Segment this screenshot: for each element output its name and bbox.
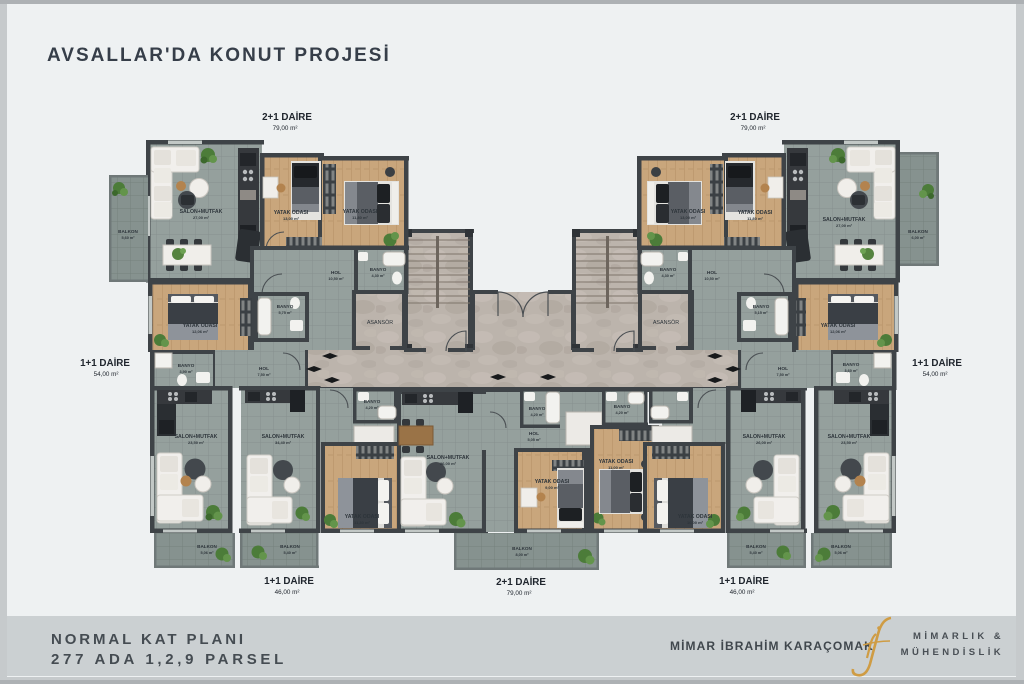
- svg-text:11,80 m²: 11,80 m²: [352, 215, 368, 220]
- svg-text:13,00 m²: 13,00 m²: [680, 215, 697, 220]
- svg-text:NORMAL KAT PLANI: NORMAL KAT PLANI: [51, 631, 246, 648]
- svg-text:4,30 m²: 4,30 m²: [371, 274, 385, 278]
- svg-text:54,00 m²: 54,00 m²: [923, 371, 948, 378]
- svg-text:BALKON: BALKON: [280, 544, 300, 549]
- svg-text:23,50 m²: 23,50 m²: [188, 440, 205, 445]
- svg-text:11,00 m²: 11,00 m²: [608, 465, 624, 470]
- svg-text:HOL: HOL: [331, 270, 341, 276]
- svg-text:79,00 m²: 79,00 m²: [273, 125, 298, 132]
- svg-text:BALKON: BALKON: [197, 544, 217, 549]
- svg-text:BALKON: BALKON: [118, 229, 138, 234]
- svg-text:5,15 m²: 5,15 m²: [754, 311, 768, 315]
- svg-text:34,40 m²: 34,40 m²: [275, 440, 292, 445]
- svg-text:27,00 m²: 27,00 m²: [193, 215, 210, 220]
- svg-text:5,40 m²: 5,40 m²: [283, 551, 297, 555]
- svg-text:10,50 m²: 10,50 m²: [704, 277, 720, 281]
- svg-text:27,00 m²: 27,00 m²: [836, 223, 853, 228]
- svg-text:26,00 m²: 26,00 m²: [440, 461, 457, 466]
- svg-text:HOL: HOL: [259, 366, 269, 372]
- svg-text:5,05 m²: 5,05 m²: [527, 438, 541, 442]
- svg-text:2+1 DAİRE: 2+1 DAİRE: [496, 577, 546, 588]
- svg-text:8,00 m²: 8,00 m²: [515, 553, 529, 557]
- svg-text:46,00 m²: 46,00 m²: [275, 589, 300, 596]
- svg-text:10,00 m²: 10,00 m²: [687, 520, 704, 525]
- svg-text:26,00 m²: 26,00 m²: [756, 440, 773, 445]
- svg-text:277 ADA 1,2,9 PARSEL: 277 ADA 1,2,9 PARSEL: [51, 651, 287, 668]
- svg-text:10,50 m²: 10,50 m²: [328, 277, 344, 281]
- svg-text:5,06 m²: 5,06 m²: [834, 551, 848, 555]
- svg-text:3,90 m²: 3,90 m²: [179, 370, 193, 374]
- svg-text:BANYO: BANYO: [277, 304, 294, 309]
- svg-text:2+1 DAİRE: 2+1 DAİRE: [262, 112, 312, 123]
- svg-text:4,20 m²: 4,20 m²: [365, 406, 379, 410]
- svg-text:BALKON: BALKON: [831, 544, 851, 549]
- svg-text:MİMARLIK &: MİMARLIK &: [913, 631, 1004, 642]
- svg-text:BALKON: BALKON: [908, 229, 928, 234]
- svg-text:BANYO: BANYO: [843, 362, 860, 367]
- svg-text:5,60 m²: 5,60 m²: [121, 236, 135, 240]
- svg-text:AVSALLAR'DA KONUT PROJESİ: AVSALLAR'DA KONUT PROJESİ: [47, 45, 391, 66]
- svg-text:7,50 m²: 7,50 m²: [776, 373, 790, 377]
- svg-text:5,06 m²: 5,06 m²: [200, 551, 214, 555]
- svg-text:79,00 m²: 79,00 m²: [741, 125, 766, 132]
- svg-text:MİMAR İBRAHİM KARAÇOMAK: MİMAR İBRAHİM KARAÇOMAK: [670, 638, 874, 653]
- svg-text:BANYO: BANYO: [614, 404, 631, 409]
- svg-text:ASANSÖR: ASANSÖR: [367, 319, 393, 326]
- svg-text:54,00 m²: 54,00 m²: [94, 371, 119, 378]
- svg-text:12,06 m²: 12,06 m²: [192, 329, 209, 334]
- svg-text:BANYO: BANYO: [753, 304, 770, 309]
- svg-text:4,30 m²: 4,30 m²: [661, 274, 675, 278]
- svg-text:BANYO: BANYO: [364, 399, 381, 404]
- svg-text:3,60 m²: 3,60 m²: [844, 369, 858, 373]
- svg-text:ASANSÖR: ASANSÖR: [653, 319, 679, 326]
- svg-text:BANYO: BANYO: [660, 267, 677, 272]
- svg-text:1+1 DAİRE: 1+1 DAİRE: [912, 358, 962, 369]
- svg-text:79,00 m²: 79,00 m²: [507, 590, 532, 597]
- svg-text:HOL: HOL: [529, 431, 539, 437]
- svg-text:BALKON: BALKON: [746, 544, 766, 549]
- svg-text:MÜHENDİSLİK: MÜHENDİSLİK: [901, 647, 1004, 658]
- svg-text:7,50 m²: 7,50 m²: [257, 373, 271, 377]
- svg-text:BANYO: BANYO: [529, 406, 546, 411]
- svg-text:13,00 m²: 13,00 m²: [283, 216, 300, 221]
- svg-text:HOL: HOL: [707, 270, 717, 276]
- svg-text:11,30 m²: 11,30 m²: [354, 520, 370, 525]
- svg-text:4,20 m²: 4,20 m²: [530, 413, 544, 417]
- svg-text:1+1 DAİRE: 1+1 DAİRE: [264, 576, 314, 587]
- svg-text:1+1 DAİRE: 1+1 DAİRE: [719, 576, 769, 587]
- svg-text:5,40 m²: 5,40 m²: [749, 551, 763, 555]
- svg-text:23,50 m²: 23,50 m²: [841, 440, 858, 445]
- svg-text:BANYO: BANYO: [370, 267, 387, 272]
- svg-text:5,75 m²: 5,75 m²: [278, 311, 292, 315]
- svg-text:BALKON: BALKON: [512, 546, 532, 551]
- svg-text:1+1 DAİRE: 1+1 DAİRE: [80, 358, 130, 369]
- svg-text:11,80 m²: 11,80 m²: [747, 216, 763, 221]
- svg-text:9,00 m²: 9,00 m²: [545, 485, 559, 490]
- svg-text:HOL: HOL: [778, 366, 788, 372]
- svg-text:4,20 m²: 4,20 m²: [615, 411, 629, 415]
- svg-text:2+1 DAİRE: 2+1 DAİRE: [730, 112, 780, 123]
- svg-text:BANYO: BANYO: [178, 363, 195, 368]
- svg-text:46,00 m²: 46,00 m²: [730, 589, 755, 596]
- svg-text:6,00 m²: 6,00 m²: [911, 236, 925, 240]
- svg-text:12,06 m²: 12,06 m²: [830, 329, 847, 334]
